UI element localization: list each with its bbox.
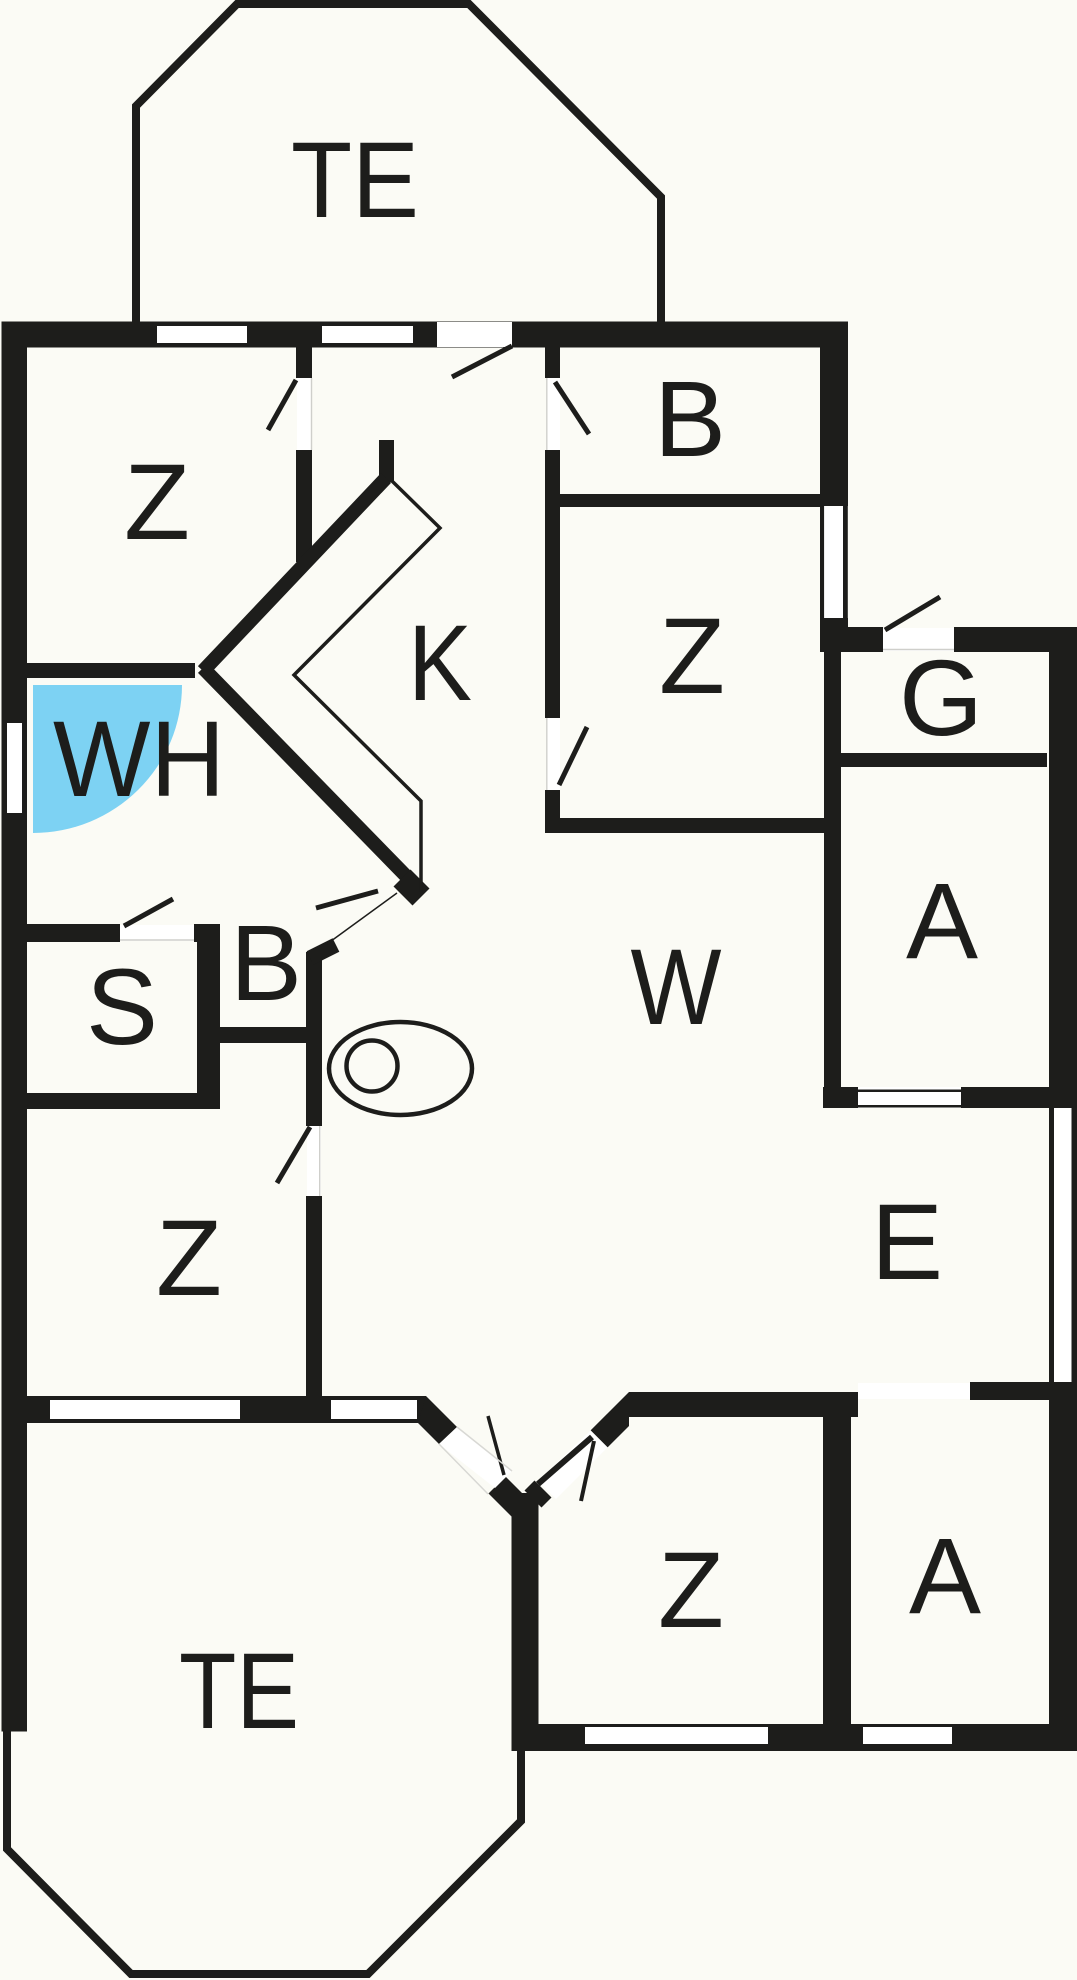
svg-text:Z: Z (659, 595, 725, 716)
svg-text:TE: TE (179, 1630, 299, 1751)
svg-text:W: W (631, 926, 722, 1047)
svg-text:TE: TE (291, 119, 419, 240)
svg-text:Z: Z (124, 441, 190, 562)
svg-text:WH: WH (53, 698, 225, 819)
svg-text:K: K (408, 602, 472, 723)
svg-text:E: E (871, 1181, 943, 1302)
svg-text:G: G (899, 637, 983, 758)
svg-text:A: A (906, 860, 978, 981)
svg-text:Z: Z (156, 1197, 222, 1318)
svg-text:A: A (909, 1515, 981, 1636)
svg-text:S: S (86, 946, 158, 1067)
svg-text:Z: Z (658, 1529, 724, 1650)
svg-text:B: B (654, 358, 726, 479)
svg-text:B: B (230, 902, 302, 1023)
